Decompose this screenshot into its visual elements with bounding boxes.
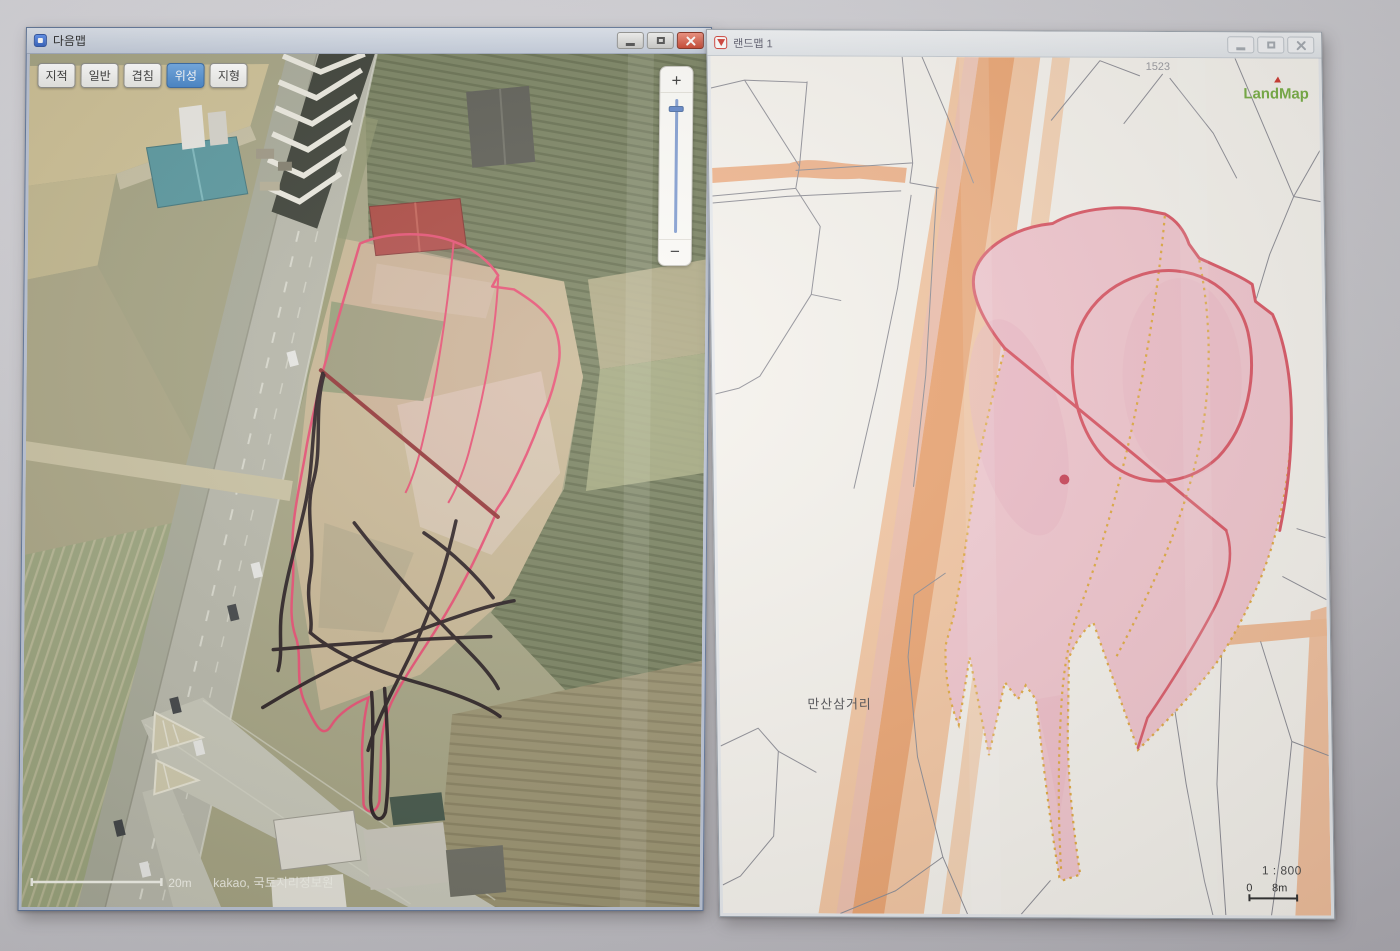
zoom-in-button[interactable]: + [660,69,692,93]
scale-ratio-label: 1 : 800 [1262,863,1302,877]
map-type-button-cadastral[interactable]: 지적 [37,63,75,88]
window-title: 다음맵 [53,32,86,49]
cadastral-map: 만산삼거리 1523 LandMap 1 : 800 0 8m [710,56,1331,916]
window-title: 랜드맵 1 [733,35,773,51]
window-controls [617,32,704,49]
landmap-titlebar[interactable]: 랜드맵 1 [707,30,1321,59]
zoom-out-button[interactable]: − [659,239,691,263]
zoom-slider-track[interactable] [674,99,678,233]
minimize-icon [626,43,635,46]
scale-bar-label: 20m [168,876,191,890]
scale-bar-start: 0 [1246,882,1252,894]
close-icon [684,35,696,47]
map-type-button-satellite[interactable]: 위성 [167,63,205,88]
daum-map-app-icon [34,34,47,47]
parcel-number-label: 1523 [1146,61,1170,73]
map-type-button-overlay[interactable]: 겹침 [124,63,162,88]
minimize-button[interactable] [617,32,644,49]
maximize-button[interactable] [1257,36,1284,53]
minimize-button[interactable] [1227,36,1254,53]
zoom-control: + − [658,66,694,266]
daum-map-window: 다음맵 [18,27,712,911]
window-controls [1227,36,1314,53]
close-icon [1295,39,1307,51]
map-type-button-general[interactable]: 일반 [81,63,119,88]
map-type-button-terrain[interactable]: 지형 [210,63,248,88]
map-attribution: kakao, 국토지리정보원 [213,876,333,890]
satellite-imagery: 20m kakao, 국토지리정보원 [22,54,708,907]
maximize-icon [1267,41,1275,48]
map-type-toolbar: 지적 일반 겹침 위성 지형 [37,63,248,88]
intersection-label: 만산삼거리 [807,696,872,711]
close-button[interactable] [677,32,704,49]
daum-map-titlebar[interactable]: 다음맵 [27,28,711,54]
scanned-photo-background: 다음맵 [0,0,1400,951]
satellite-map-canvas[interactable]: 20m kakao, 국토지리정보원 지적 일반 겹침 위성 지형 + − [22,54,708,907]
zoom-slider-handle[interactable] [669,106,684,112]
landmap-window: 랜드맵 1 [706,29,1335,920]
cadastral-map-canvas[interactable]: 만산삼거리 1523 LandMap 1 : 800 0 8m [710,56,1331,916]
close-button[interactable] [1287,37,1314,54]
maximize-button[interactable] [647,32,674,49]
scale-bar-end: 8m [1272,882,1287,894]
landmap-app-icon [714,36,727,49]
minimize-icon [1236,47,1245,50]
maximize-icon [656,37,664,44]
landmap-logo-text: LandMap [1243,85,1309,102]
